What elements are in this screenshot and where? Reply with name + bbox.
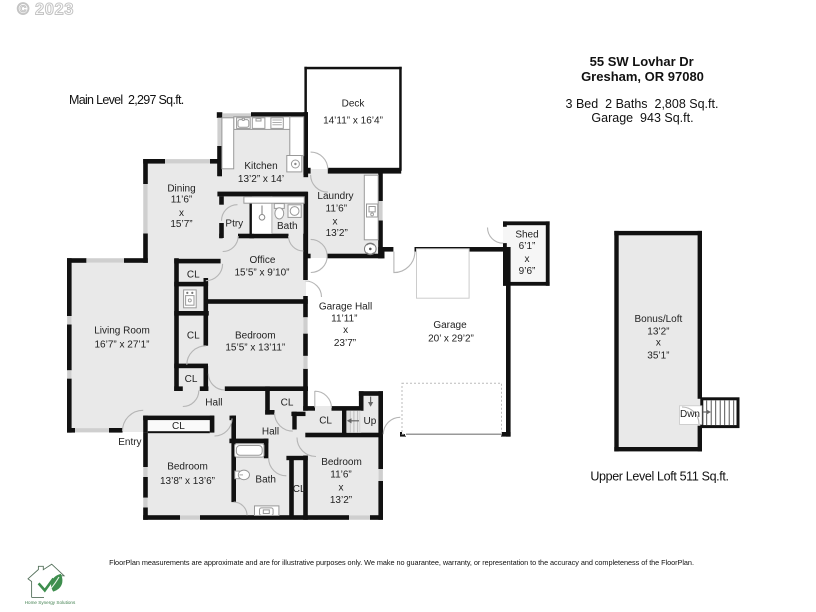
svg-text:Up: Up (364, 416, 377, 427)
svg-text:15’5” x 13’11”: 15’5” x 13’11” (225, 343, 285, 354)
svg-text:9’6”: 9’6” (519, 266, 536, 277)
svg-text:Entry: Entry (118, 437, 141, 448)
svg-text:Bedroom: Bedroom (321, 457, 362, 468)
svg-text:CL: CL (185, 374, 198, 385)
svg-text:11’6”: 11’6” (326, 204, 348, 215)
svg-text:15’5” x 9’10”: 15’5” x 9’10” (234, 268, 289, 279)
svg-text:Garage 943 Sq.ft.: Garage 943 Sq.ft. (591, 111, 693, 125)
svg-text:Gresham, OR 97080: Gresham, OR 97080 (581, 69, 704, 84)
svg-text:Home Synergy Solutions: Home Synergy Solutions (25, 600, 76, 605)
svg-text:Shed: Shed (515, 230, 538, 241)
svg-text:Main Level 2,297 Sq.ft.: Main Level 2,297 Sq.ft. (69, 93, 184, 107)
svg-text:Dwn: Dwn (680, 409, 700, 420)
svg-text:Hall: Hall (262, 427, 279, 438)
svg-text:Bedroom: Bedroom (167, 461, 208, 472)
svg-text:11’11”: 11’11” (331, 314, 357, 325)
svg-text:Kitchen: Kitchen (244, 161, 277, 172)
svg-text:20’ x 29’2”: 20’ x 29’2” (428, 334, 474, 345)
svg-text:CL: CL (187, 330, 200, 341)
svg-text:FloorPlan measurements are app: FloorPlan measurements are approximate a… (109, 558, 694, 567)
svg-text:Living Room: Living Room (94, 326, 150, 337)
svg-text:15’7”: 15’7” (170, 219, 192, 230)
svg-text:Deck: Deck (342, 98, 366, 109)
svg-text:x: x (333, 217, 338, 228)
svg-text:11’6”: 11’6” (330, 470, 352, 481)
svg-text:Dining: Dining (167, 184, 195, 195)
svg-text:14’11” x 16’4”: 14’11” x 16’4” (323, 115, 383, 126)
svg-text:CL: CL (187, 269, 200, 280)
svg-text:© 2023: © 2023 (17, 1, 74, 19)
svg-text:x: x (179, 208, 184, 219)
svg-text:13’2” x 14’: 13’2” x 14’ (238, 174, 284, 185)
svg-text:Ptry: Ptry (225, 219, 243, 230)
svg-text:3 Bed 2 Baths 2,808 Sq.ft.: 3 Bed 2 Baths 2,808 Sq.ft. (566, 97, 719, 111)
svg-text:x: x (525, 254, 530, 265)
svg-text:Office: Office (250, 255, 276, 266)
svg-text:16’7” x 27’1”: 16’7” x 27’1” (94, 340, 149, 351)
svg-text:13’8” x 13’6”: 13’8” x 13’6” (160, 476, 215, 487)
svg-text:CL: CL (172, 421, 185, 432)
svg-text:Bonus/Loft: Bonus/Loft (634, 314, 682, 325)
svg-text:Laundry: Laundry (317, 191, 353, 202)
svg-text:6’1”: 6’1” (519, 241, 536, 252)
svg-text:Bath: Bath (255, 475, 276, 486)
svg-text:CL: CL (293, 484, 306, 495)
svg-text:13’2”: 13’2” (330, 495, 352, 506)
svg-text:Garage Hall: Garage Hall (319, 302, 372, 313)
svg-text:CL: CL (319, 416, 332, 427)
svg-text:Upper Level Loft 511 Sq.ft.: Upper Level Loft 511 Sq.ft. (590, 470, 728, 484)
svg-text:x: x (343, 325, 348, 336)
svg-text:Hall: Hall (205, 398, 222, 409)
svg-text:35’1”: 35’1” (647, 350, 669, 361)
svg-text:CL: CL (281, 398, 294, 409)
svg-text:13’2”: 13’2” (326, 228, 348, 239)
svg-text:55 SW Lovhar Dr: 55 SW Lovhar Dr (590, 54, 694, 69)
svg-text:23’7”: 23’7” (334, 338, 356, 349)
svg-text:13’2”: 13’2” (647, 326, 669, 337)
svg-text:Bedroom: Bedroom (235, 331, 276, 342)
svg-text:Garage: Garage (433, 320, 467, 331)
svg-text:11’6”: 11’6” (171, 195, 193, 206)
svg-text:x: x (339, 483, 344, 494)
svg-text:x: x (656, 338, 661, 349)
svg-text:Bath: Bath (277, 221, 298, 232)
